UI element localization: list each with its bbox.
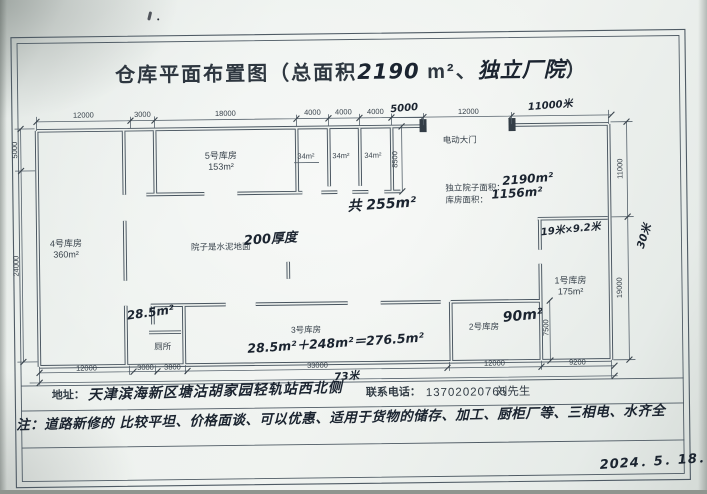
dim-bottom-3000: 3000 (137, 363, 154, 373)
toilet-label: 厕所 (154, 341, 171, 352)
electric-gate-label: 电动大门 (443, 134, 477, 145)
dim-top-4000a: 4000 (304, 108, 321, 118)
dim-top-18000: 18000 (215, 109, 236, 119)
room5-area: 153m² (191, 161, 251, 173)
room4-name: 4号库房 (40, 238, 92, 250)
gate-post-left (419, 119, 426, 132)
dim-left-5000: 5000 (10, 142, 20, 159)
room4-label: 4号库房 360m² (40, 238, 92, 261)
yard-floor-label: 院子是水泥地面 (191, 241, 251, 252)
warehouse-area-label: 库房面积： (445, 194, 488, 205)
dim-right-19000: 19000 (615, 277, 625, 298)
dim-bottom-9200: 9200 (569, 357, 586, 367)
room1-area: 175m² (546, 286, 596, 298)
dim-8500: 8500 (390, 151, 400, 168)
small-room-1-area: 34m² (292, 151, 320, 161)
yard-floor-thickness-hand: 200厚度 (243, 230, 297, 250)
dim-bottom-12000a: 12000 (76, 363, 97, 373)
dim-top-4000c: 4000 (367, 107, 384, 117)
photographed-floorplan-flyer: { "title": { "part1": "仓库平面布置图（总面积", "pa… (0, 0, 707, 490)
room2-name: 2号库房 (463, 321, 505, 332)
dim-right-11000: 11000 (615, 159, 625, 179)
room1-name: 1号库房 (545, 275, 595, 287)
dim-top-3000: 3000 (134, 110, 151, 120)
room1-label: 1号库房 175m² (545, 275, 595, 298)
dim-bottom-12000b: 12000 (484, 358, 505, 368)
dim-top-12000: 12000 (73, 110, 94, 120)
small-room-3-area: 34m² (359, 151, 387, 161)
phone-label: 联系电话： (366, 386, 421, 400)
address-label: 地址： (52, 389, 85, 403)
drawing-content: 仓库平面布置图（总面积2190 m²、独立厂院） 12000 3000 1800… (0, 0, 707, 494)
contact-name: 刘先生 (496, 385, 531, 400)
dim-bottom-3800: 3800 (164, 362, 181, 372)
dim-gate-12000: 12000 (458, 107, 479, 117)
gate-post-right (508, 118, 515, 131)
dim-top-hand-5000: 5000 (390, 102, 419, 117)
room3-name: 3号库房 (285, 324, 327, 335)
dim-left-24000: 24000 (11, 256, 21, 277)
dim-bottom-33000: 33000 (307, 361, 328, 371)
small-room-2-area: 34m² (327, 151, 355, 161)
dim-top-4000b: 4000 (335, 107, 352, 117)
room5-name: 5号库房 (191, 150, 251, 162)
room4-area: 360m² (40, 249, 92, 261)
room5-label: 5号库房 153m² (191, 150, 251, 173)
